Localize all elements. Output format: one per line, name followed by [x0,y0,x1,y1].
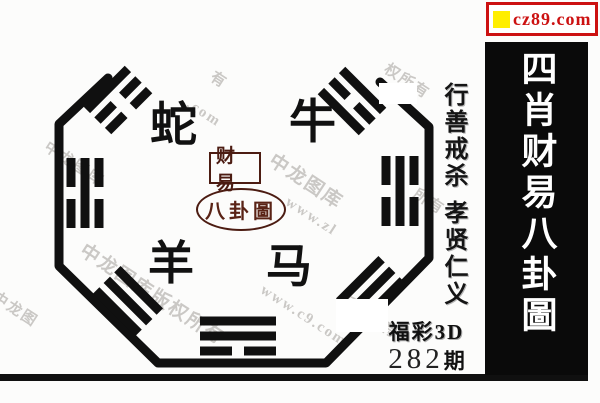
bottom-rule [0,374,588,381]
zodiac-snake: 蛇 [150,103,197,150]
zodiac-ox: 牛 [289,100,336,147]
trigram-top-left [84,66,153,135]
title-strip-text: 四肖财易八卦圖 [519,42,555,375]
yellow-square-icon [493,11,510,28]
seal-box: 财易 [209,152,261,184]
issue-number: 282 [388,343,444,375]
site-banner: cz89.com [486,2,598,36]
game-name: 福彩3D [378,321,475,344]
zodiac-goat: 羊 [148,241,194,287]
bagua-lottery-image: 中龙图库有.com权所有中龙图库www.zl所有中龙图库版权所有www.c9.c… [0,0,600,403]
site-name: cz89.com [513,9,591,30]
zodiac-horse: 马 [266,244,312,290]
trigram-right-middle [382,156,419,226]
trigram-left-middle [67,158,104,228]
motto-line-2: 孝贤仁义 [441,200,465,308]
motto-column: 行善戒杀 孝贤仁义 [441,82,465,308]
seal-oval: 八卦圖 [196,188,286,231]
trigram-bottom-middle [200,317,276,356]
issue-block: 福彩3D 282期 [378,321,475,376]
issue-unit: 期 [444,349,465,373]
motto-line-1: 行善戒杀 [441,82,465,190]
censor-patch [379,83,417,104]
title-strip: 四肖财易八卦圖 [485,42,588,375]
